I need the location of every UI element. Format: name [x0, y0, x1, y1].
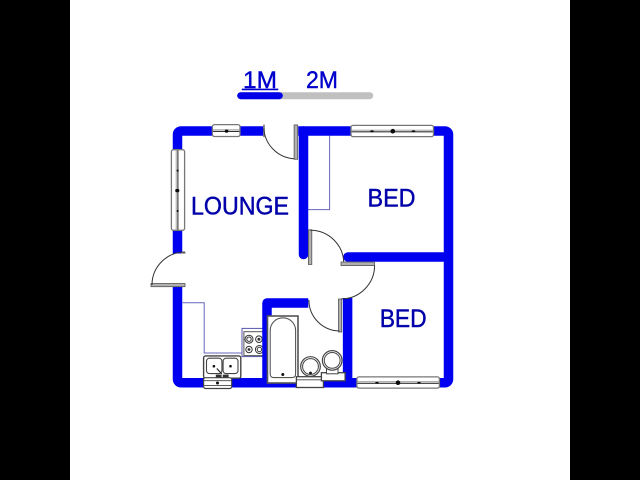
- svg-text:2M: 2M: [306, 67, 338, 94]
- svg-text:BED: BED: [380, 305, 427, 333]
- svg-text:BED: BED: [368, 185, 416, 213]
- svg-text:LOUNGE: LOUNGE: [191, 193, 289, 221]
